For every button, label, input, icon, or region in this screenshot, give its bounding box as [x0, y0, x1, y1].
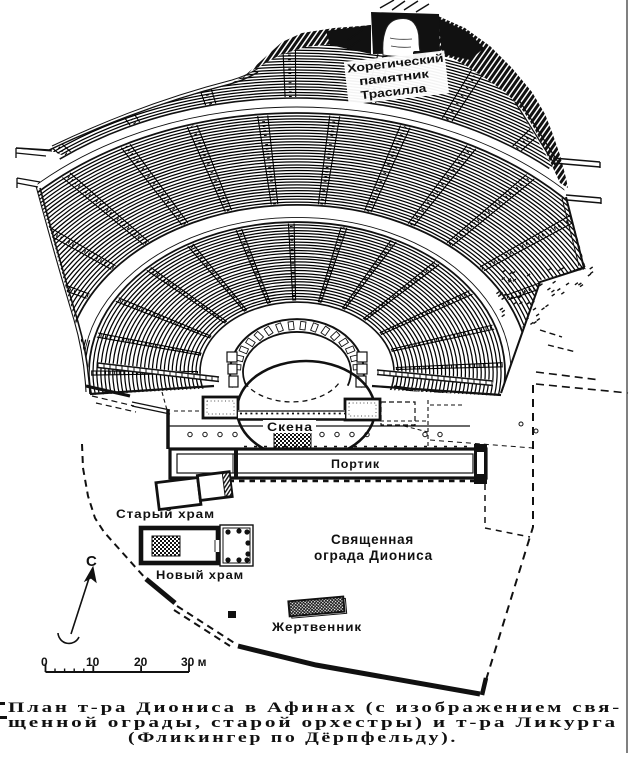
svg-text:План т-ра Диониса в Афинах (с: План т-ра Диониса в Афинах (с изображени… — [8, 700, 622, 716]
svg-text:щенной ограды, старой орхестр: щенной ограды, старой орхестры) и т-ра Л… — [8, 715, 618, 731]
svg-text:10: 10 — [86, 655, 100, 669]
svg-text:0: 0 — [41, 655, 48, 669]
svg-text:(Фликингер по Дёрпфельду).: (Фликингер по Дёрпфельду). — [128, 730, 458, 746]
svg-text:С: С — [86, 553, 97, 570]
svg-text:Старый храм: Старый храм — [116, 507, 215, 521]
svg-text:Скена: Скена — [267, 420, 313, 434]
svg-text:30 м: 30 м — [181, 655, 207, 669]
svg-text:Новый храм: Новый храм — [156, 568, 244, 582]
svg-text:Жертвенник: Жертвенник — [271, 620, 362, 634]
svg-text:20: 20 — [134, 655, 148, 669]
svg-text:Священная: Священная — [331, 532, 414, 547]
svg-text:Портик: Портик — [331, 457, 380, 471]
svg-text:ограда Диониса: ограда Диониса — [314, 548, 433, 563]
